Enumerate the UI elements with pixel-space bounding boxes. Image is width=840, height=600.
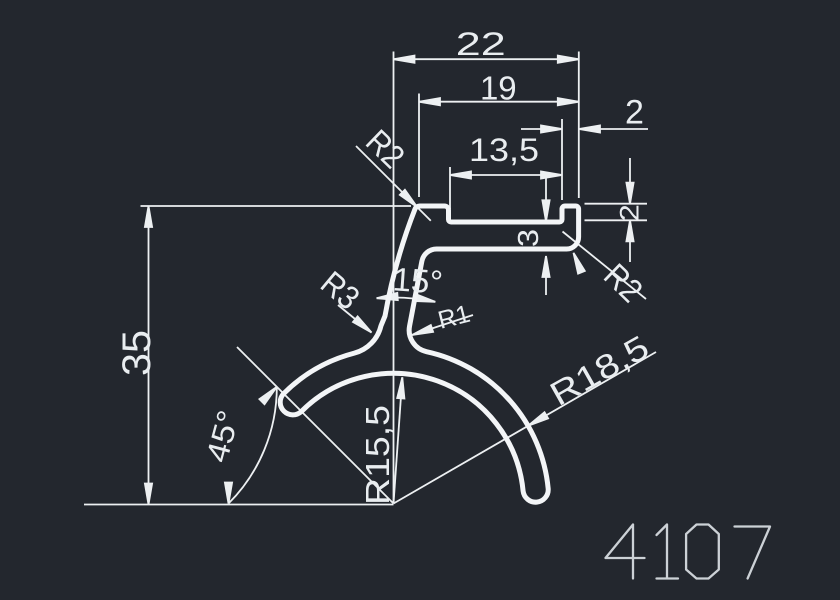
- svg-text:35: 35: [115, 330, 159, 376]
- svg-text:3: 3: [513, 229, 545, 247]
- svg-text:15°: 15°: [392, 260, 444, 300]
- svg-text:19: 19: [480, 70, 517, 107]
- svg-text:R15,5: R15,5: [360, 405, 397, 505]
- svg-text:13,5: 13,5: [469, 132, 539, 168]
- svg-text:2: 2: [615, 204, 645, 221]
- svg-text:22: 22: [456, 26, 506, 62]
- svg-text:2: 2: [625, 94, 644, 132]
